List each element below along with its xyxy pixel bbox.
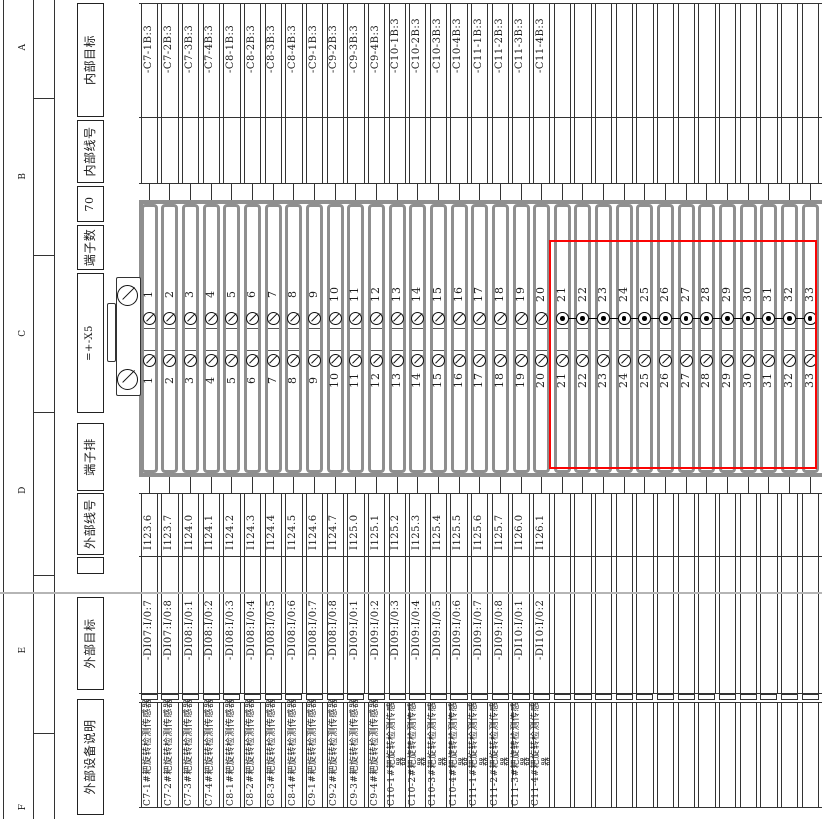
wire-tick (252, 183, 253, 200)
wire-tick (541, 477, 542, 493)
terminal-channel-line (330, 350, 341, 351)
header-label-terminal_strip_label: 端子排 (84, 425, 97, 489)
cell-border (260, 3, 261, 183)
sheet-border-left (3, 0, 4, 819)
screw-slash (332, 313, 340, 321)
cell-border (306, 3, 307, 183)
cell-border (198, 3, 199, 183)
cell-border (343, 3, 344, 183)
wire-tick (397, 183, 398, 200)
device-desc-label-line1: C11-3#耙旋转检测传感 (512, 702, 521, 806)
external-wire-label: I123.6 (144, 496, 155, 550)
cell-border (818, 3, 819, 183)
wire-tick (810, 183, 811, 200)
external-wire-label: I124.2 (226, 496, 237, 550)
cell-border (157, 702, 158, 807)
cell-border (673, 702, 674, 807)
screw-slash (167, 355, 175, 363)
terminal-bar-12 (368, 204, 385, 473)
cell-border (673, 3, 674, 183)
terminal-bar-2 (161, 204, 178, 473)
cell-border (219, 3, 220, 183)
header-label-strip_designation: =+-X5 (85, 275, 96, 411)
cell-border (405, 3, 406, 183)
cell-border (591, 3, 592, 183)
screw-slash (291, 313, 299, 321)
screw-slash (394, 313, 402, 321)
cell-border (141, 702, 142, 807)
terminal-channel-line (516, 350, 527, 351)
external-wire-label: I125.2 (391, 496, 402, 550)
terminal-number-top: 16 (453, 281, 465, 307)
zone-separator (33, 733, 54, 734)
wire-tick (748, 477, 749, 493)
screw-slash (476, 313, 484, 321)
cell-border (364, 3, 365, 183)
terminal-bar-14 (409, 204, 426, 473)
terminal-bar-13 (389, 204, 406, 473)
internal-target-label: -C10-2B:3 (412, 3, 423, 73)
screw-top (432, 312, 445, 325)
terminal-number-bottom: 1 (143, 368, 155, 392)
wire-tick (603, 477, 604, 493)
terminal-channel-line (454, 328, 465, 329)
cell-border (797, 3, 798, 183)
cell-border (487, 3, 488, 183)
screw-slash (249, 355, 257, 363)
screw-slash (497, 355, 505, 363)
screw-slash (518, 313, 526, 321)
cell-border (508, 3, 509, 183)
terminal-number-bottom: 15 (432, 368, 444, 392)
cell-border (574, 702, 575, 807)
terminal-bar-20 (533, 204, 550, 473)
wire-tick (479, 183, 480, 200)
screw-slash (122, 371, 135, 384)
wire-tick (521, 477, 522, 493)
terminal-channel-line (268, 350, 279, 351)
wire-tick (706, 183, 707, 200)
device-desc-label: C9-4#耙旋转检测传感器 (371, 702, 380, 806)
terminal-bar-19 (513, 204, 530, 473)
wire-tick (624, 183, 625, 200)
cell-border (529, 3, 530, 183)
device-desc-label: C8-1#耙旋转检测传感器 (227, 702, 236, 806)
wire-tick (314, 183, 315, 200)
terminal-channel-line (288, 328, 299, 329)
external-target-label: -DI08:I/0:5 (267, 584, 278, 660)
terminal-channel-line (247, 350, 258, 351)
cell-border (719, 702, 720, 807)
wire-tag-box (781, 694, 798, 700)
zone-letter-F: F (19, 798, 28, 816)
cell-border (715, 702, 716, 807)
cell-border (616, 702, 617, 807)
terminal-number-bottom: 2 (164, 368, 176, 392)
external-target-label: -DI08:I/0:6 (288, 584, 299, 660)
wire-tick (273, 183, 274, 200)
device-desc-label: C7-3#耙旋转检测传感器 (185, 702, 194, 806)
external-target-label: -DI08:I/0:8 (329, 584, 340, 660)
external-target-label: -DI09:I/0:3 (391, 584, 402, 660)
cell-border (591, 702, 592, 807)
wire-tick (810, 477, 811, 493)
wire-tick (479, 477, 480, 493)
cell-border (409, 3, 410, 183)
cell-border (302, 702, 303, 807)
external-target-label: -DI09:I/0:1 (350, 584, 361, 660)
screw-slash (208, 355, 216, 363)
external-target-label: -DI08:I/0:1 (185, 584, 196, 660)
terminal-bar-18 (492, 204, 509, 473)
screw-bottom (205, 354, 218, 367)
wire-tag-box (636, 694, 653, 700)
wire-tick (355, 183, 356, 200)
wire-tick (231, 183, 232, 200)
internal-target-label: -C11-2B:3 (495, 3, 506, 73)
device-desc-label-line2: 器 (398, 754, 407, 766)
wire-tick (169, 477, 170, 493)
row-line (139, 807, 822, 808)
screw-slash (208, 313, 216, 321)
wire-tick (768, 477, 769, 493)
zone-separator (33, 255, 54, 256)
terminal-number-bottom: 13 (391, 368, 403, 392)
terminal-number-top: 13 (391, 281, 403, 307)
wire-tag-box (389, 694, 406, 700)
device-desc-label-line1: C10-4#耙旋转检测传感 (450, 702, 459, 806)
wire-tick (582, 477, 583, 493)
wire-tick (748, 183, 749, 200)
terminal-number-top: 7 (267, 281, 279, 307)
screw-slash (270, 313, 278, 321)
screw-bottom (143, 354, 156, 367)
cell-border (285, 702, 286, 807)
external-wire-label: I126.1 (536, 496, 547, 550)
cell-border (141, 3, 142, 183)
internal-target-label: -C7-3B:3 (185, 3, 196, 73)
wire-tag-box (740, 694, 757, 700)
header-label-external_wire_no: 外部线号 (84, 495, 97, 553)
wire-tick (789, 183, 790, 200)
terminal-number-top: 20 (535, 281, 547, 307)
external-wire-label: I124.4 (267, 496, 278, 550)
screw-top (308, 312, 321, 325)
cell-border (611, 702, 612, 807)
terminal-number-top: 15 (432, 281, 444, 307)
internal-target-label: -C8-4B:3 (288, 3, 299, 73)
wire-tag-box (678, 694, 695, 700)
wire-tag-box (616, 694, 633, 700)
terminal-bar-9 (306, 204, 323, 473)
terminal-channel-line (309, 328, 320, 329)
terminal-channel-line (226, 328, 237, 329)
screw-slash (146, 313, 154, 321)
wire-tick (252, 477, 253, 493)
screw-slash (311, 313, 319, 321)
screw-bottom (246, 354, 259, 367)
screw-top (267, 312, 280, 325)
zone-band-line (54, 0, 55, 819)
screw-slash (332, 355, 340, 363)
cell-border (678, 702, 679, 807)
cell-border (347, 702, 348, 807)
cell-border (178, 3, 179, 183)
internal-target-label: -C7-1B:3 (144, 3, 155, 73)
device-desc-label-line2: 器 (502, 754, 511, 766)
screw-slash (497, 313, 505, 321)
wire-tag-box (554, 694, 571, 700)
zone-separator (33, 412, 54, 413)
terminal-channel-line (371, 350, 382, 351)
screw-slash (291, 355, 299, 363)
screw-slash (229, 355, 237, 363)
screw-top (370, 312, 383, 325)
wire-tick (438, 477, 439, 493)
wire-tick (789, 477, 790, 493)
external-wire-label: I124.1 (205, 496, 216, 550)
screw-slash (229, 313, 237, 321)
cell-border (802, 3, 803, 183)
wire-tag-box (450, 694, 467, 700)
screw-top (246, 312, 259, 325)
cell-border (632, 3, 633, 183)
screw-top (143, 312, 156, 325)
header-label-internal_wire_no: 内部线号 (84, 122, 97, 181)
terminal-number-top: 12 (370, 281, 382, 307)
terminal-channel-line (144, 328, 155, 329)
cell-border (657, 3, 658, 183)
cell-border (616, 3, 617, 183)
terminal-channel-line (516, 328, 527, 329)
external-target-label: -DI09:I/0:4 (412, 584, 423, 660)
cell-border (636, 3, 637, 183)
zone-letter-A: A (19, 38, 28, 56)
terminal-channel-line (185, 350, 196, 351)
cell-border (777, 702, 778, 807)
device-desc-label-line1: C10-2#耙旋转检测传感 (409, 702, 418, 806)
cell-border (322, 3, 323, 183)
wire-tag-box (409, 694, 426, 700)
internal-target-label: -C9-1B:3 (309, 3, 320, 73)
end-stop-tab (107, 303, 117, 362)
terminal-channel-line (288, 350, 299, 351)
device-desc-label: C9-1#耙旋转检测传感器 (309, 702, 318, 806)
cell-border (223, 702, 224, 807)
internal-target-label: -C7-2B:3 (164, 3, 175, 73)
internal-target-label: -C9-2B:3 (329, 3, 340, 73)
header-label-external_device_desc: 外部设备说明 (84, 701, 97, 813)
cell-border (240, 702, 241, 807)
cell-border (735, 3, 736, 183)
terminal-bar-6 (244, 204, 261, 473)
external-target-label: -DI08:I/0:2 (205, 584, 216, 660)
internal-target-label: -C11-3B:3 (515, 3, 526, 73)
wire-tick (562, 183, 563, 200)
wire-tick (603, 183, 604, 200)
internal-target-label: -C8-1B:3 (226, 3, 237, 73)
terminal-number-bottom: 9 (308, 368, 320, 392)
screw-slash (353, 313, 361, 321)
external-wire-label: I124.0 (185, 496, 196, 550)
terminal-number-top: 17 (473, 281, 485, 307)
internal-target-label: -C7-4B:3 (205, 3, 216, 73)
screw-top (184, 312, 197, 325)
screw-slash (167, 313, 175, 321)
terminal-number-bottom: 20 (535, 368, 547, 392)
cell-border (198, 702, 199, 807)
internal-target-label: -C11-4B:3 (536, 3, 547, 73)
screw-bottom (515, 354, 528, 367)
terminal-channel-line (144, 350, 155, 351)
cell-border (178, 702, 179, 807)
terminal-channel-line (164, 350, 175, 351)
wire-tag-box (533, 694, 550, 700)
zone-letter-D: D (19, 481, 28, 499)
terminal-number-bottom: 17 (473, 368, 485, 392)
screw-bottom (370, 354, 383, 367)
external-target-label: -DI09:I/0:7 (474, 584, 485, 660)
cell-border (781, 702, 782, 807)
terminal-channel-line (392, 328, 403, 329)
wire-tick (335, 183, 336, 200)
cell-border (781, 3, 782, 183)
terminal-bar-17 (471, 204, 488, 473)
wire-tag-box (430, 694, 447, 700)
cell-border (698, 702, 699, 807)
terminal-number-top: 10 (329, 281, 341, 307)
wire-tick (169, 183, 170, 200)
wire-tick (438, 183, 439, 200)
cell-border (636, 702, 637, 807)
cell-border (265, 702, 266, 807)
terminal-channel-line (474, 328, 485, 329)
internal-target-label: -C8-3B:3 (267, 3, 278, 73)
cell-border (570, 3, 571, 183)
wire-tick (624, 477, 625, 493)
terminal-number-bottom: 16 (453, 368, 465, 392)
screw-slash (146, 355, 154, 363)
terminal-number-top: 9 (308, 281, 320, 307)
external-wire-label: I125.0 (350, 496, 361, 550)
external-target-label: -DI09:I/0:6 (453, 584, 464, 660)
wire-tick (686, 183, 687, 200)
cell-border (802, 702, 803, 807)
external-target-label: -DI08:I/0:4 (247, 584, 258, 660)
cell-border (632, 702, 633, 807)
terminal-bar-3 (182, 204, 199, 473)
cell-border (740, 702, 741, 807)
wire-tag-box (471, 694, 488, 700)
device-desc-label: C7-1#耙旋转检测传感器 (144, 702, 153, 806)
cell-border (368, 702, 369, 807)
cell-border (549, 3, 550, 183)
cell-border (182, 702, 183, 807)
terminal-channel-line (164, 328, 175, 329)
terminal-number-top: 3 (184, 281, 196, 307)
wire-tick (706, 477, 707, 493)
header-label-internal_target: 内部目标 (84, 5, 97, 115)
cell-border (219, 702, 220, 807)
wire-tick (397, 477, 398, 493)
wire-tick (521, 183, 522, 200)
device-desc-label-line1: C11-1#耙旋转检测传感 (470, 702, 479, 806)
terminal-number-bottom: 10 (329, 368, 341, 392)
external-wire-label: I124.5 (288, 496, 299, 550)
terminal-bar-16 (451, 204, 468, 473)
cell-border (760, 702, 761, 807)
terminal-channel-line (495, 328, 506, 329)
external-wire-label: I125.3 (412, 496, 423, 550)
header-box-spacer (77, 557, 104, 574)
wire-tick (541, 183, 542, 200)
screw-slash (476, 355, 484, 363)
external-wire-label: I125.1 (371, 496, 382, 550)
screw-top (329, 312, 342, 325)
screw-slash (414, 313, 422, 321)
screw-bottom (453, 354, 466, 367)
terminal-number-bottom: 6 (246, 368, 258, 392)
terminal-channel-line (392, 350, 403, 351)
end-plate-screw (117, 369, 138, 390)
cell-border (240, 3, 241, 183)
wire-tag-box (574, 694, 591, 700)
cell-border (533, 3, 534, 183)
cell-border (694, 702, 695, 807)
terminal-channel-line (495, 350, 506, 351)
wire-tick (665, 183, 666, 200)
terminal-number-top: 19 (515, 281, 527, 307)
cell-border (446, 3, 447, 183)
screw-slash (270, 355, 278, 363)
cell-border (694, 3, 695, 183)
terminal-bar-7 (265, 204, 282, 473)
cell-border (653, 702, 654, 807)
wire-tick (355, 477, 356, 493)
wire-tick (686, 477, 687, 493)
external-target-label: -DI07:I/0:8 (164, 584, 175, 660)
external-target-label: -DI08:I/0:3 (226, 584, 237, 660)
screw-top (391, 312, 404, 325)
fold-line (0, 592, 822, 594)
terminal-number-bottom: 18 (494, 368, 506, 392)
wire-tag-box (802, 694, 819, 700)
wire-tag-box (512, 694, 529, 700)
cell-border (653, 3, 654, 183)
screw-slash (122, 287, 135, 300)
terminal-number-top: 8 (287, 281, 299, 307)
screw-bottom (329, 354, 342, 367)
external-wire-label: I124.3 (247, 496, 258, 550)
internal-target-label: -C8-2B:3 (247, 3, 258, 73)
cell-border (574, 3, 575, 183)
terminal-number-bottom: 19 (515, 368, 527, 392)
external-wire-label: I124.6 (309, 496, 320, 550)
wire-tick (231, 477, 232, 493)
wire-tick (644, 183, 645, 200)
wire-tick (644, 477, 645, 493)
wire-tick (273, 477, 274, 493)
cell-border (281, 702, 282, 807)
external-wire-label: I125.7 (495, 496, 506, 550)
cell-border (698, 3, 699, 183)
internal-target-label: -C9-3B:3 (350, 3, 361, 73)
cell-border (306, 702, 307, 807)
screw-slash (311, 355, 319, 363)
terminal-number-top: 14 (411, 281, 423, 307)
cell-border (182, 3, 183, 183)
terminal-number-bottom: 7 (267, 368, 279, 392)
